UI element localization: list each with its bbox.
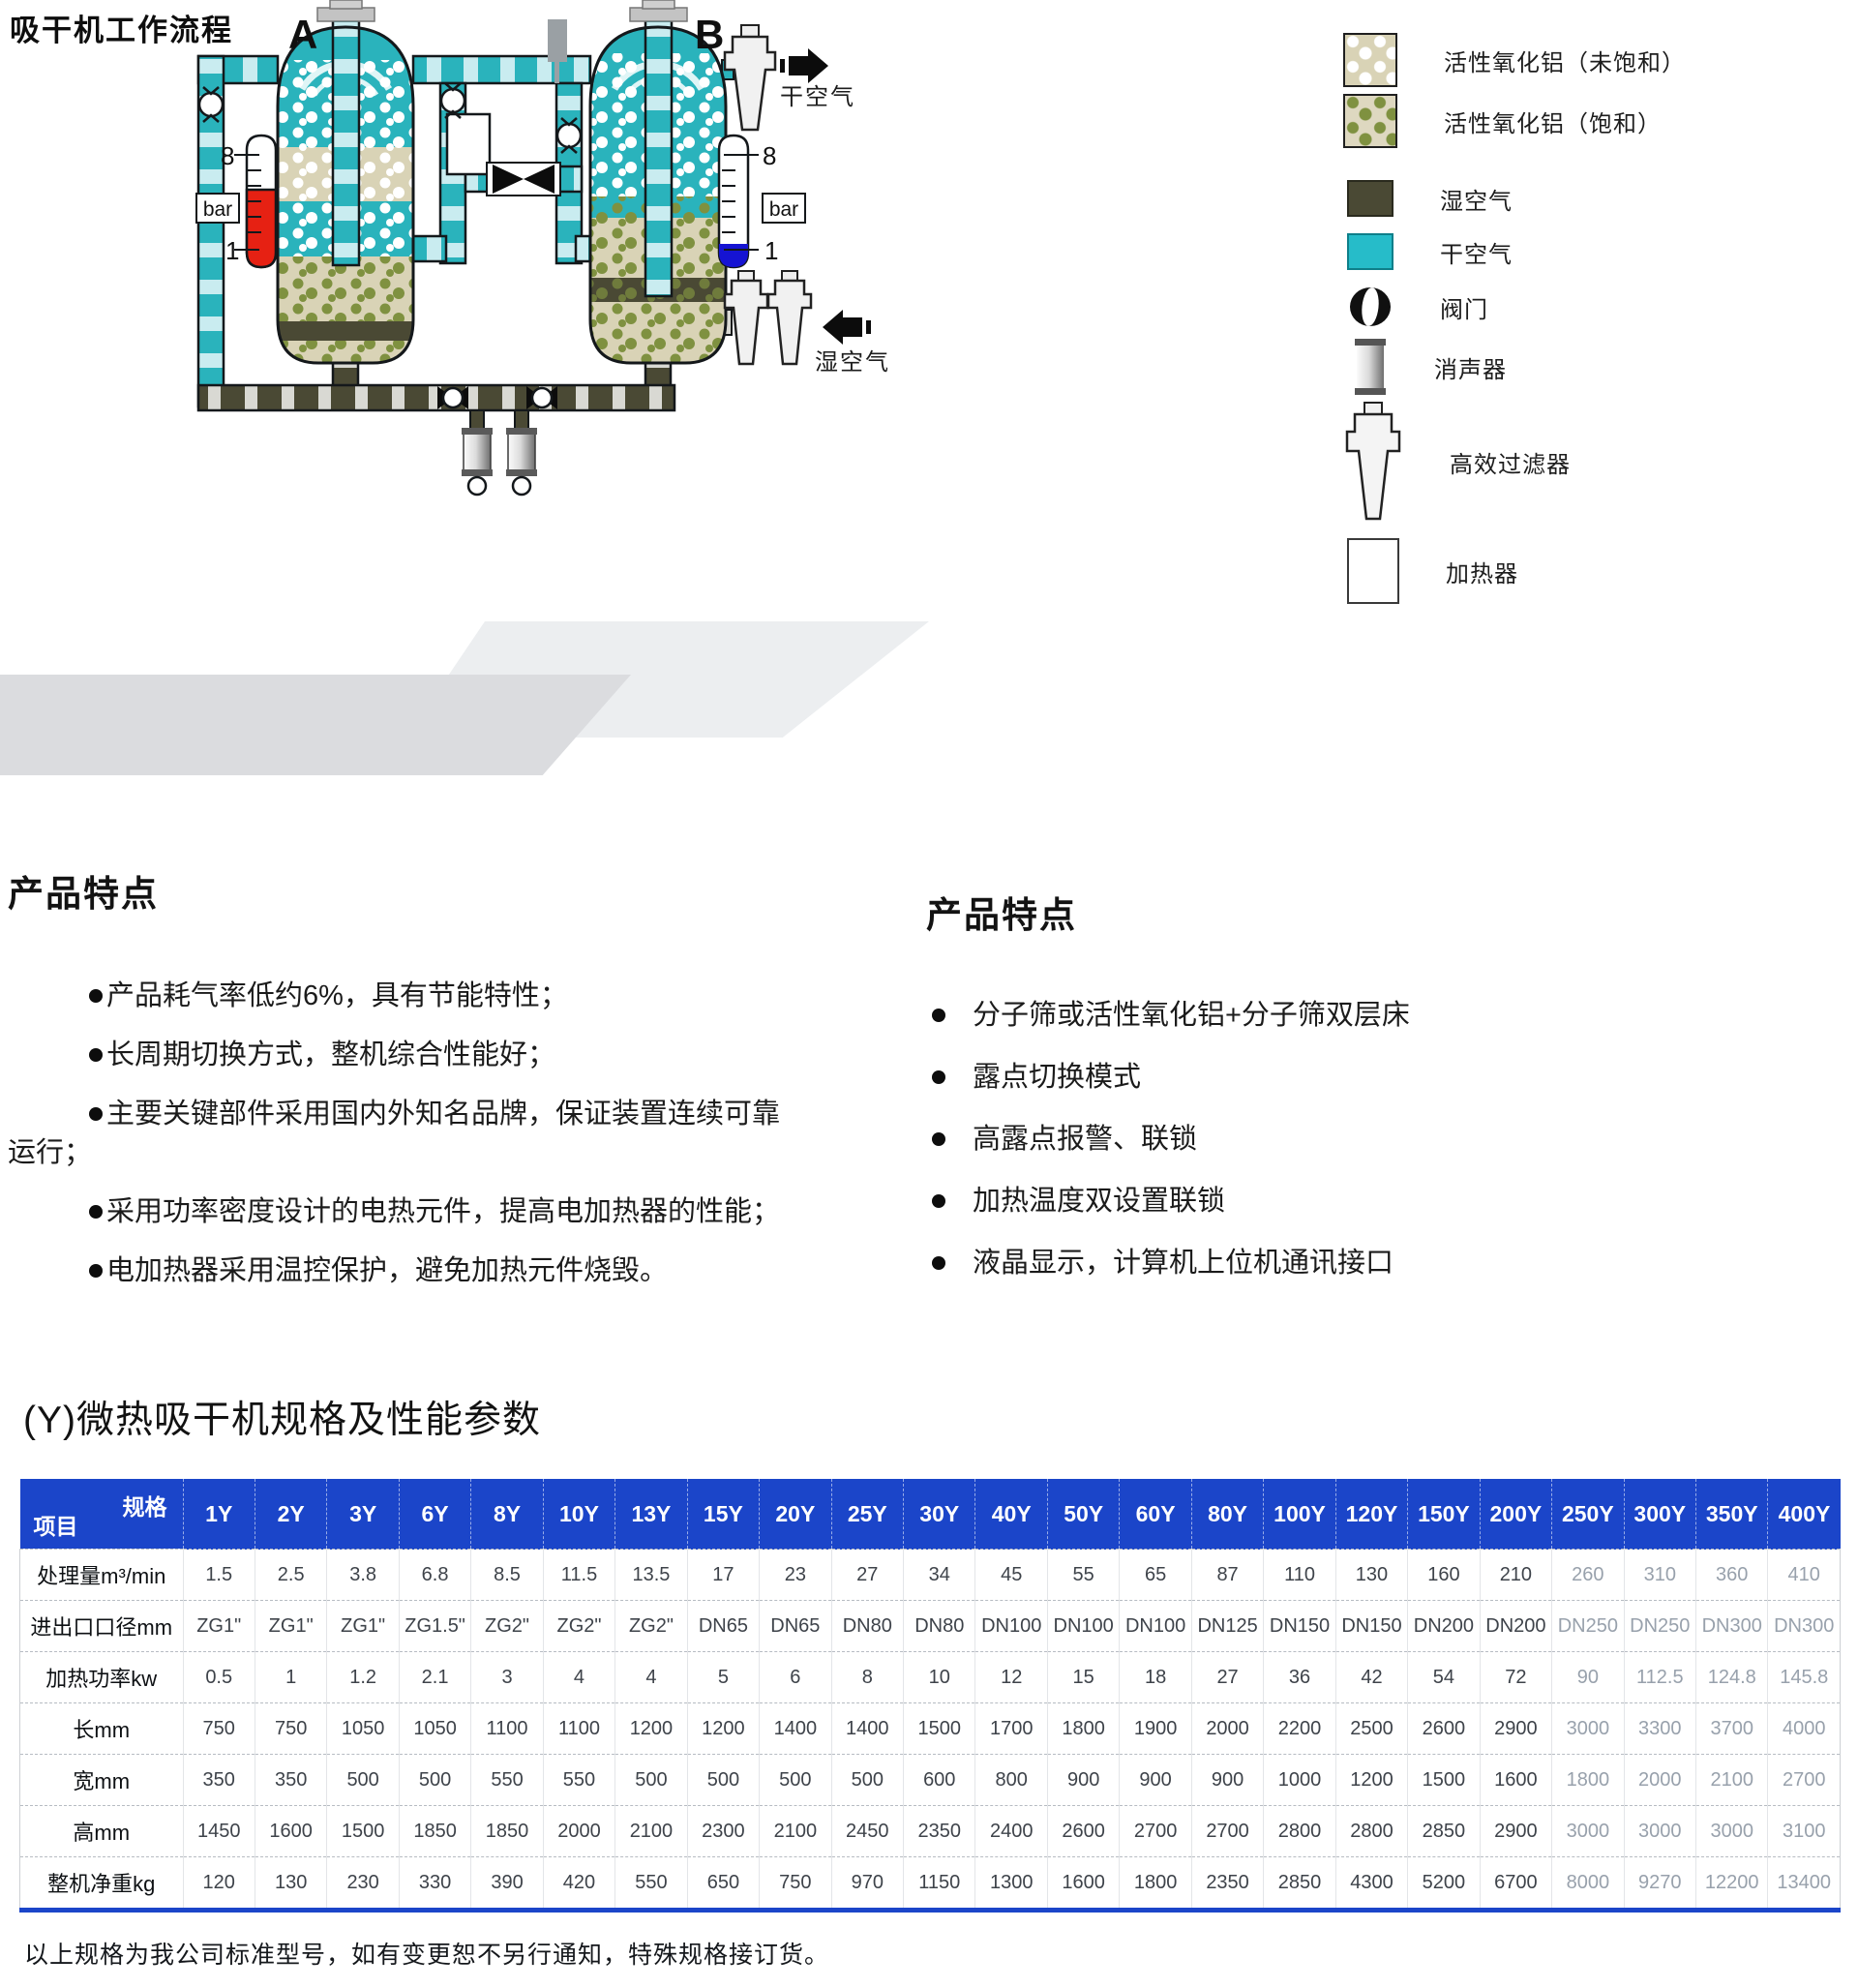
spec-col-8Y: 8Y bbox=[471, 1479, 543, 1550]
mufflers bbox=[462, 428, 537, 495]
spec-col-120Y: 120Y bbox=[1335, 1479, 1407, 1550]
feature-text: 主要关键部件采用国内外知名品牌，保证装置连续可靠运行； bbox=[8, 1099, 780, 1168]
bullet-icon bbox=[932, 1009, 945, 1022]
bullet-icon bbox=[932, 1194, 945, 1208]
spec-cell: 1050 bbox=[399, 1703, 470, 1755]
legend-item-valve: 阀门 bbox=[1347, 286, 1488, 328]
spec-col-100Y: 100Y bbox=[1264, 1479, 1335, 1550]
spec-cell: 10 bbox=[904, 1652, 975, 1703]
spec-col-400Y: 400Y bbox=[1768, 1479, 1841, 1550]
spec-cell: 2100 bbox=[760, 1806, 831, 1857]
spec-cell: 2800 bbox=[1335, 1806, 1407, 1857]
spec-cell: DN100 bbox=[975, 1601, 1047, 1652]
features-right: 产品特点 分子筛或活性氧化铝+分子筛双层床露点切换模式高露点报警、联锁加热温度双… bbox=[926, 886, 1497, 1306]
spec-row-label: 宽mm bbox=[20, 1755, 184, 1806]
spec-cell: 2700 bbox=[1768, 1755, 1841, 1806]
corner-cell: 规格 项目 bbox=[20, 1479, 184, 1550]
bullet-icon bbox=[932, 1256, 945, 1270]
spec-cell: 2700 bbox=[1191, 1806, 1263, 1857]
feature-item: 电加热器采用温控保护，避免加热元件烧毁。 bbox=[8, 1251, 788, 1290]
spec-cell: 17 bbox=[687, 1550, 759, 1601]
bullet-icon bbox=[89, 989, 103, 1003]
spec-cell: 160 bbox=[1408, 1550, 1480, 1601]
features-left-list: 产品耗气率低约6%，具有节能特性；长周期切换方式，整机综合性能好；主要关键部件采… bbox=[8, 977, 788, 1290]
spec-cell: ZG1" bbox=[327, 1601, 399, 1652]
spec-row: 整机净重kg1201302303303904205506507509701150… bbox=[20, 1857, 1841, 1911]
spec-cell: 1500 bbox=[327, 1806, 399, 1857]
spec-cell: 34 bbox=[904, 1550, 975, 1601]
spec-cell: 900 bbox=[1191, 1755, 1263, 1806]
spec-cell: 12200 bbox=[1696, 1857, 1768, 1911]
spec-cell: 2000 bbox=[1191, 1703, 1263, 1755]
spec-col-3Y: 3Y bbox=[327, 1479, 399, 1550]
legend-label: 湿空气 bbox=[1440, 182, 1513, 216]
spec-cell: 1 bbox=[255, 1652, 326, 1703]
spec-cell: 1850 bbox=[471, 1806, 543, 1857]
bullet-icon bbox=[932, 1132, 945, 1146]
spec-table-title: (Y)微热吸干机规格及性能参数 bbox=[23, 1390, 541, 1444]
spec-row-label: 进出口口径mm bbox=[20, 1601, 184, 1652]
spec-cell: 2100 bbox=[1696, 1755, 1768, 1806]
feature-text: 加热温度双设置联锁 bbox=[973, 1186, 1225, 1217]
flange-a bbox=[317, 8, 375, 21]
spec-cell: 1000 bbox=[1264, 1755, 1335, 1806]
legend-item-alumina-saturated: 活性氧化铝（饱和） bbox=[1343, 94, 1662, 148]
spec-cell: 65 bbox=[1120, 1550, 1191, 1601]
spec-cell: 4 bbox=[543, 1652, 614, 1703]
feature-item: 主要关键部件采用国内外知名品牌，保证装置连续可靠运行； bbox=[8, 1095, 788, 1172]
spec-row-label: 长mm bbox=[20, 1703, 184, 1755]
spec-cell: 90 bbox=[1552, 1652, 1624, 1703]
spec-cell: 2450 bbox=[831, 1806, 903, 1857]
spec-cell: 36 bbox=[1264, 1652, 1335, 1703]
spec-cell: 260 bbox=[1552, 1550, 1624, 1601]
spec-cell: 54 bbox=[1408, 1652, 1480, 1703]
spec-col-80Y: 80Y bbox=[1191, 1479, 1263, 1550]
spec-table: 规格 项目 1Y2Y3Y6Y8Y10Y13Y15Y20Y25Y30Y40Y50Y… bbox=[19, 1479, 1841, 1913]
pressure-gauge-right: 8 1 bar bbox=[719, 136, 805, 267]
spec-cell: 410 bbox=[1768, 1550, 1841, 1601]
feature-item: 长周期切换方式，整机综合性能好； bbox=[8, 1036, 788, 1074]
hepa-filter-icon bbox=[1343, 401, 1403, 523]
spec-cell: DN300 bbox=[1768, 1601, 1841, 1652]
spec-cell: 500 bbox=[399, 1755, 470, 1806]
spec-cell: ZG2" bbox=[615, 1601, 687, 1652]
spec-cell: 1700 bbox=[975, 1703, 1047, 1755]
feature-item: 产品耗气率低约6%，具有节能特性； bbox=[8, 977, 788, 1015]
feature-text: 分子筛或活性氧化铝+分子筛双层床 bbox=[973, 1000, 1410, 1031]
spec-cell: 650 bbox=[687, 1857, 759, 1911]
spec-cell: 500 bbox=[615, 1755, 687, 1806]
spec-cell: 2200 bbox=[1264, 1703, 1335, 1755]
spec-cell: DN125 bbox=[1191, 1601, 1263, 1652]
wet-air-swatch bbox=[1347, 180, 1393, 217]
spec-col-20Y: 20Y bbox=[760, 1479, 831, 1550]
feature-text: 液晶显示，计算机上位机通讯接口 bbox=[973, 1248, 1393, 1279]
spec-cell: 11.5 bbox=[543, 1550, 614, 1601]
feature-item: 液晶显示，计算机上位机通讯接口 bbox=[926, 1244, 1497, 1282]
features-right-list: 分子筛或活性氧化铝+分子筛双层床露点切换模式高露点报警、联锁加热温度双设置联锁液… bbox=[926, 996, 1497, 1282]
spec-cell: 4 bbox=[615, 1652, 687, 1703]
spec-cell: 42 bbox=[1335, 1652, 1407, 1703]
spec-cell: 350 bbox=[183, 1755, 255, 1806]
spec-cell: 12 bbox=[975, 1652, 1047, 1703]
legend-item-dry-air: 干空气 bbox=[1347, 233, 1513, 270]
spec-cell: 1050 bbox=[327, 1703, 399, 1755]
spec-cell: 500 bbox=[327, 1755, 399, 1806]
spec-cell: 3 bbox=[471, 1652, 543, 1703]
spec-cell: 1150 bbox=[904, 1857, 975, 1911]
spec-cell: 2850 bbox=[1264, 1857, 1335, 1911]
spec-cell: 87 bbox=[1191, 1550, 1263, 1601]
spec-cell: 230 bbox=[327, 1857, 399, 1911]
spec-cell: 15 bbox=[1047, 1652, 1119, 1703]
spec-col-40Y: 40Y bbox=[975, 1479, 1047, 1550]
spec-col-10Y: 10Y bbox=[543, 1479, 614, 1550]
spec-cell: 1450 bbox=[183, 1806, 255, 1857]
spec-col-60Y: 60Y bbox=[1120, 1479, 1191, 1550]
spec-cell: 2500 bbox=[1335, 1703, 1407, 1755]
tower-b-label: B bbox=[695, 12, 724, 57]
legend-item-wet-air: 湿空气 bbox=[1347, 180, 1513, 217]
spec-row: 高mm1450160015001850185020002100230021002… bbox=[20, 1806, 1841, 1857]
spec-cell: 1600 bbox=[1480, 1755, 1551, 1806]
spec-cell: 0.5 bbox=[183, 1652, 255, 1703]
spec-cell: 1600 bbox=[1047, 1857, 1119, 1911]
spec-cell: 750 bbox=[183, 1703, 255, 1755]
spec-cell: 130 bbox=[1335, 1550, 1407, 1601]
spec-cell: 1800 bbox=[1552, 1755, 1624, 1806]
heater-icon bbox=[1347, 538, 1399, 604]
spec-col-50Y: 50Y bbox=[1047, 1479, 1119, 1550]
spec-cell: 1800 bbox=[1120, 1857, 1191, 1911]
spec-row-label: 处理量m³/min bbox=[20, 1550, 184, 1601]
spec-col-6Y: 6Y bbox=[399, 1479, 470, 1550]
bullet-icon bbox=[89, 1264, 103, 1278]
heater-block bbox=[447, 114, 490, 174]
spec-cell: 2400 bbox=[975, 1806, 1047, 1857]
spec-cell: DN65 bbox=[760, 1601, 831, 1652]
spec-cell: 550 bbox=[471, 1755, 543, 1806]
inlet-filters bbox=[725, 271, 811, 364]
spec-cell: ZG1.5" bbox=[399, 1601, 470, 1652]
spec-cell: 8 bbox=[831, 1652, 903, 1703]
dry-air-arrow bbox=[780, 48, 828, 83]
legend-item-muffler: 消声器 bbox=[1353, 337, 1507, 397]
spec-cell: 900 bbox=[1120, 1755, 1191, 1806]
spec-col-15Y: 15Y bbox=[687, 1479, 759, 1550]
spec-row-label: 高mm bbox=[20, 1806, 184, 1857]
spec-cell: 2100 bbox=[615, 1806, 687, 1857]
spec-col-2Y: 2Y bbox=[255, 1479, 326, 1550]
feature-text: 采用功率密度设计的电热元件，提高电加热器的性能； bbox=[106, 1196, 780, 1227]
footnote: 以上规格为我公司标准型号，如有变更恕不另行通知，特殊规格接订货。 bbox=[24, 1936, 829, 1971]
spec-cell: ZG2" bbox=[543, 1601, 614, 1652]
spec-cell: 500 bbox=[687, 1755, 759, 1806]
legend-item-alumina-unsaturated: 活性氧化铝（未饱和） bbox=[1343, 33, 1686, 87]
spec-cell: 23 bbox=[760, 1550, 831, 1601]
feature-text: 高露点报警、联锁 bbox=[973, 1124, 1197, 1155]
spec-cell: 210 bbox=[1480, 1550, 1551, 1601]
spec-cell: 3000 bbox=[1552, 1703, 1624, 1755]
feature-item: 露点切换模式 bbox=[926, 1058, 1497, 1097]
gauge-max-left: 8 bbox=[221, 141, 234, 170]
spec-cell: 6 bbox=[760, 1652, 831, 1703]
switch-valve bbox=[487, 163, 560, 196]
bullet-icon bbox=[89, 1048, 103, 1062]
spec-cell: 1900 bbox=[1120, 1703, 1191, 1755]
legend-label: 加热器 bbox=[1446, 555, 1518, 588]
spec-cell: 330 bbox=[399, 1857, 470, 1911]
alumina-unsaturated-swatch bbox=[1343, 33, 1397, 87]
spec-cell: 1400 bbox=[760, 1703, 831, 1755]
spec-cell: 2900 bbox=[1480, 1806, 1551, 1857]
spec-cell: ZG1" bbox=[183, 1601, 255, 1652]
spec-cell: 550 bbox=[615, 1857, 687, 1911]
spec-cell: DN80 bbox=[904, 1601, 975, 1652]
spec-cell: 1800 bbox=[1047, 1703, 1119, 1755]
valve-icon bbox=[1347, 286, 1393, 328]
spec-cell: ZG1" bbox=[255, 1601, 326, 1652]
gauge-min-left: 1 bbox=[225, 236, 239, 265]
spec-cell: DN100 bbox=[1047, 1601, 1119, 1652]
spec-cell: DN150 bbox=[1264, 1601, 1335, 1652]
tower-a-label: A bbox=[288, 12, 317, 57]
legend-label: 高效过滤器 bbox=[1450, 445, 1571, 479]
spec-cell: 3300 bbox=[1624, 1703, 1695, 1755]
feature-item: 分子筛或活性氧化铝+分子筛双层床 bbox=[926, 996, 1497, 1035]
process-flow-diagram: A B bbox=[0, 0, 1026, 629]
spec-cell: DN200 bbox=[1408, 1601, 1480, 1652]
spec-cell: 8.5 bbox=[471, 1550, 543, 1601]
features-right-heading: 产品特点 bbox=[926, 886, 1497, 938]
features-left-heading: 产品特点 bbox=[8, 864, 788, 917]
bullet-icon bbox=[932, 1070, 945, 1084]
gauge-unit-left: bar bbox=[203, 198, 232, 221]
spec-cell: 900 bbox=[1047, 1755, 1119, 1806]
feature-text: 长周期切换方式，整机综合性能好； bbox=[106, 1039, 555, 1070]
spec-cell: 2800 bbox=[1264, 1806, 1335, 1857]
spec-cell: ZG2" bbox=[471, 1601, 543, 1652]
feature-item: 高露点报警、联锁 bbox=[926, 1120, 1497, 1159]
spec-cell: 550 bbox=[543, 1755, 614, 1806]
spec-cell: 145.8 bbox=[1768, 1652, 1841, 1703]
spec-cell: 800 bbox=[975, 1755, 1047, 1806]
spec-table-body: 处理量m³/min1.52.53.86.88.511.513.517232734… bbox=[20, 1550, 1841, 1911]
spec-cell: 970 bbox=[831, 1857, 903, 1911]
spec-col-13Y: 13Y bbox=[615, 1479, 687, 1550]
legend-item-hepa-filter: 高效过滤器 bbox=[1343, 401, 1571, 523]
spec-row: 进出口口径mmZG1"ZG1"ZG1"ZG1.5"ZG2"ZG2"ZG2"DN6… bbox=[20, 1601, 1841, 1652]
spec-cell: DN250 bbox=[1624, 1601, 1695, 1652]
spec-cell: 112.5 bbox=[1624, 1652, 1695, 1703]
spec-cell: 2600 bbox=[1047, 1806, 1119, 1857]
spec-cell: 4000 bbox=[1768, 1703, 1841, 1755]
spec-cell: 1850 bbox=[399, 1806, 470, 1857]
spec-cell: 55 bbox=[1047, 1550, 1119, 1601]
legend-label: 活性氧化铝（饱和） bbox=[1444, 105, 1662, 138]
spec-cell: 1100 bbox=[471, 1703, 543, 1755]
spec-cell: 27 bbox=[1191, 1652, 1263, 1703]
spec-cell: 3.8 bbox=[327, 1550, 399, 1601]
spec-row: 宽mm3503505005005505505005005005006008009… bbox=[20, 1755, 1841, 1806]
spec-cell: 18 bbox=[1120, 1652, 1191, 1703]
spec-cell: 390 bbox=[471, 1857, 543, 1911]
spec-cell: 2700 bbox=[1120, 1806, 1191, 1857]
spec-cell: 310 bbox=[1624, 1550, 1695, 1601]
spec-row-label: 整机净重kg bbox=[20, 1857, 184, 1911]
spec-cell: DN80 bbox=[831, 1601, 903, 1652]
spec-cell: 750 bbox=[760, 1857, 831, 1911]
spec-cell: 1.5 bbox=[183, 1550, 255, 1601]
feature-text: 电加热器采用温控保护，避免加热元件烧毁。 bbox=[106, 1255, 668, 1286]
spec-cell: DN150 bbox=[1335, 1601, 1407, 1652]
spec-cell: 13.5 bbox=[615, 1550, 687, 1601]
spec-col-300Y: 300Y bbox=[1624, 1479, 1695, 1550]
spec-cell: 750 bbox=[255, 1703, 326, 1755]
feature-text: 产品耗气率低约6%，具有节能特性； bbox=[106, 980, 568, 1011]
spec-cell: 6.8 bbox=[399, 1550, 470, 1601]
gauge-max-right: 8 bbox=[763, 141, 776, 170]
corner-spec-label: 规格 bbox=[123, 1489, 167, 1521]
spec-cell: 2350 bbox=[904, 1806, 975, 1857]
spec-cell: 2350 bbox=[1191, 1857, 1263, 1911]
legend-label: 活性氧化铝（未饱和） bbox=[1444, 44, 1686, 77]
spec-row: 长mm7507501050105011001100120012001400140… bbox=[20, 1703, 1841, 1755]
spec-col-200Y: 200Y bbox=[1480, 1479, 1551, 1550]
spec-cell: 13400 bbox=[1768, 1857, 1841, 1911]
flange-b bbox=[630, 8, 687, 21]
alumina-saturated-swatch bbox=[1343, 94, 1397, 148]
spec-row: 加热功率kw0.511.22.1344568101215182736425472… bbox=[20, 1652, 1841, 1703]
feature-item: 加热温度双设置联锁 bbox=[926, 1182, 1497, 1220]
spec-col-350Y: 350Y bbox=[1696, 1479, 1768, 1550]
spec-col-1Y: 1Y bbox=[183, 1479, 255, 1550]
spec-row: 处理量m³/min1.52.53.86.88.511.513.517232734… bbox=[20, 1550, 1841, 1601]
spec-cell: 3000 bbox=[1624, 1806, 1695, 1857]
spec-col-30Y: 30Y bbox=[904, 1479, 975, 1550]
spec-cell: DN200 bbox=[1480, 1601, 1551, 1652]
bullet-icon bbox=[89, 1205, 103, 1219]
spec-cell: 5200 bbox=[1408, 1857, 1480, 1911]
catalog-page: 吸干机工作流程 bbox=[0, 0, 1858, 1988]
spec-cell: 1400 bbox=[831, 1703, 903, 1755]
spec-cell: 2600 bbox=[1408, 1703, 1480, 1755]
spec-cell: 360 bbox=[1696, 1550, 1768, 1601]
spec-col-25Y: 25Y bbox=[831, 1479, 903, 1550]
spec-cell: 2300 bbox=[687, 1806, 759, 1857]
wet-air-label: 湿空气 bbox=[815, 349, 890, 376]
legend-label: 消声器 bbox=[1434, 350, 1507, 384]
spec-cell: 500 bbox=[831, 1755, 903, 1806]
spec-cell: 1200 bbox=[1335, 1755, 1407, 1806]
spec-cell: DN100 bbox=[1120, 1601, 1191, 1652]
spec-cell: 2.5 bbox=[255, 1550, 326, 1601]
spec-cell: DN300 bbox=[1696, 1601, 1768, 1652]
spec-cell: 1200 bbox=[615, 1703, 687, 1755]
spec-cell: 500 bbox=[760, 1755, 831, 1806]
spec-cell: DN65 bbox=[687, 1601, 759, 1652]
spec-cell: 2000 bbox=[543, 1806, 614, 1857]
spec-cell: 3000 bbox=[1696, 1806, 1768, 1857]
gauge-min-right: 1 bbox=[764, 236, 778, 265]
spec-cell: 2900 bbox=[1480, 1703, 1551, 1755]
legend-label: 阀门 bbox=[1440, 290, 1488, 324]
spec-cell: 1500 bbox=[1408, 1755, 1480, 1806]
spec-col-250Y: 250Y bbox=[1552, 1479, 1624, 1550]
spec-cell: 130 bbox=[255, 1857, 326, 1911]
spec-cell: 1200 bbox=[687, 1703, 759, 1755]
dry-air-swatch bbox=[1347, 233, 1393, 270]
spec-cell: 1.2 bbox=[327, 1652, 399, 1703]
spec-cell: 27 bbox=[831, 1550, 903, 1601]
dry-air-label: 干空气 bbox=[780, 84, 855, 110]
features-left: 产品特点 产品耗气率低约6%，具有节能特性；长周期切换方式，整机综合性能好；主要… bbox=[8, 864, 788, 1310]
feature-item: 采用功率密度设计的电热元件，提高电加热器的性能； bbox=[8, 1192, 788, 1231]
wet-air-arrow bbox=[823, 310, 871, 345]
spec-cell: DN250 bbox=[1552, 1601, 1624, 1652]
spec-row-label: 加热功率kw bbox=[20, 1652, 184, 1703]
legend-item-heater: 加热器 bbox=[1347, 538, 1518, 604]
spec-cell: 2.1 bbox=[399, 1652, 470, 1703]
spec-cell: 5 bbox=[687, 1652, 759, 1703]
spec-col-150Y: 150Y bbox=[1408, 1479, 1480, 1550]
bullet-icon bbox=[89, 1107, 103, 1121]
spec-cell: 1600 bbox=[255, 1806, 326, 1857]
spec-cell: 1500 bbox=[904, 1703, 975, 1755]
legend-label: 干空气 bbox=[1440, 235, 1513, 269]
spec-cell: 4300 bbox=[1335, 1857, 1407, 1911]
spec-cell: 72 bbox=[1480, 1652, 1551, 1703]
spec-cell: 6700 bbox=[1480, 1857, 1551, 1911]
decorative-ribbon bbox=[0, 675, 631, 775]
spec-cell: 1300 bbox=[975, 1857, 1047, 1911]
spec-cell: 350 bbox=[255, 1755, 326, 1806]
spec-cell: 3700 bbox=[1696, 1703, 1768, 1755]
spec-header-row: 规格 项目 1Y2Y3Y6Y8Y10Y13Y15Y20Y25Y30Y40Y50Y… bbox=[20, 1479, 1841, 1550]
spec-cell: 2850 bbox=[1408, 1806, 1480, 1857]
muffler-icon bbox=[1353, 337, 1388, 397]
spec-cell: 8000 bbox=[1552, 1857, 1624, 1911]
spec-cell: 3000 bbox=[1552, 1806, 1624, 1857]
spec-cell: 3100 bbox=[1768, 1806, 1841, 1857]
spec-cell: 1100 bbox=[543, 1703, 614, 1755]
spec-cell: 2000 bbox=[1624, 1755, 1695, 1806]
corner-item-label: 项目 bbox=[34, 1508, 78, 1541]
spec-cell: 600 bbox=[904, 1755, 975, 1806]
spec-cell: 9270 bbox=[1624, 1857, 1695, 1911]
spec-cell: 120 bbox=[183, 1857, 255, 1911]
spec-cell: 45 bbox=[975, 1550, 1047, 1601]
gauge-unit-right: bar bbox=[769, 198, 798, 221]
spec-cell: 420 bbox=[543, 1857, 614, 1911]
feature-text: 露点切换模式 bbox=[973, 1062, 1141, 1093]
spec-cell: 110 bbox=[1264, 1550, 1335, 1601]
spec-cell: 124.8 bbox=[1696, 1652, 1768, 1703]
